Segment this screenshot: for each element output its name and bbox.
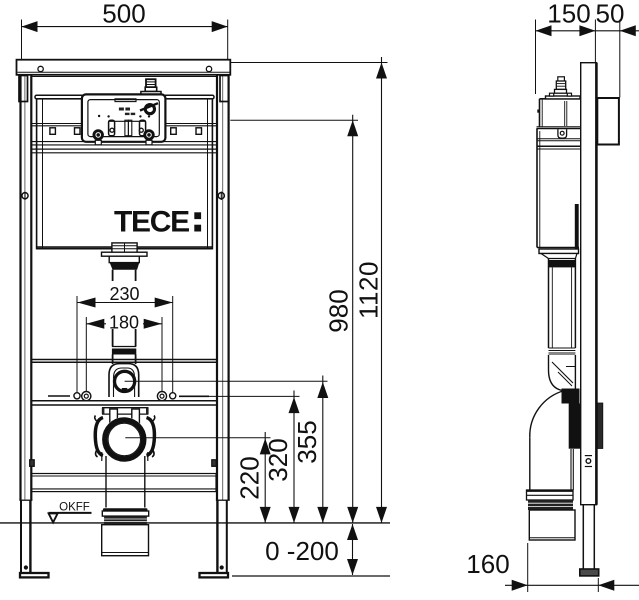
svg-text:220: 220 <box>235 456 265 499</box>
svg-text:230: 230 <box>109 284 139 304</box>
svg-text:160: 160 <box>466 549 509 579</box>
svg-text:OKFF: OKFF <box>59 501 90 513</box>
svg-text:500: 500 <box>102 0 145 29</box>
svg-text:355: 355 <box>292 420 322 463</box>
svg-text:150: 150 <box>547 0 590 29</box>
svg-text:TECE: TECE <box>114 206 189 239</box>
svg-text:1120: 1120 <box>354 261 384 319</box>
svg-text:0 -200: 0 -200 <box>265 536 339 566</box>
svg-text:180: 180 <box>109 312 139 332</box>
svg-text:320: 320 <box>263 438 293 481</box>
svg-text:980: 980 <box>324 289 354 332</box>
